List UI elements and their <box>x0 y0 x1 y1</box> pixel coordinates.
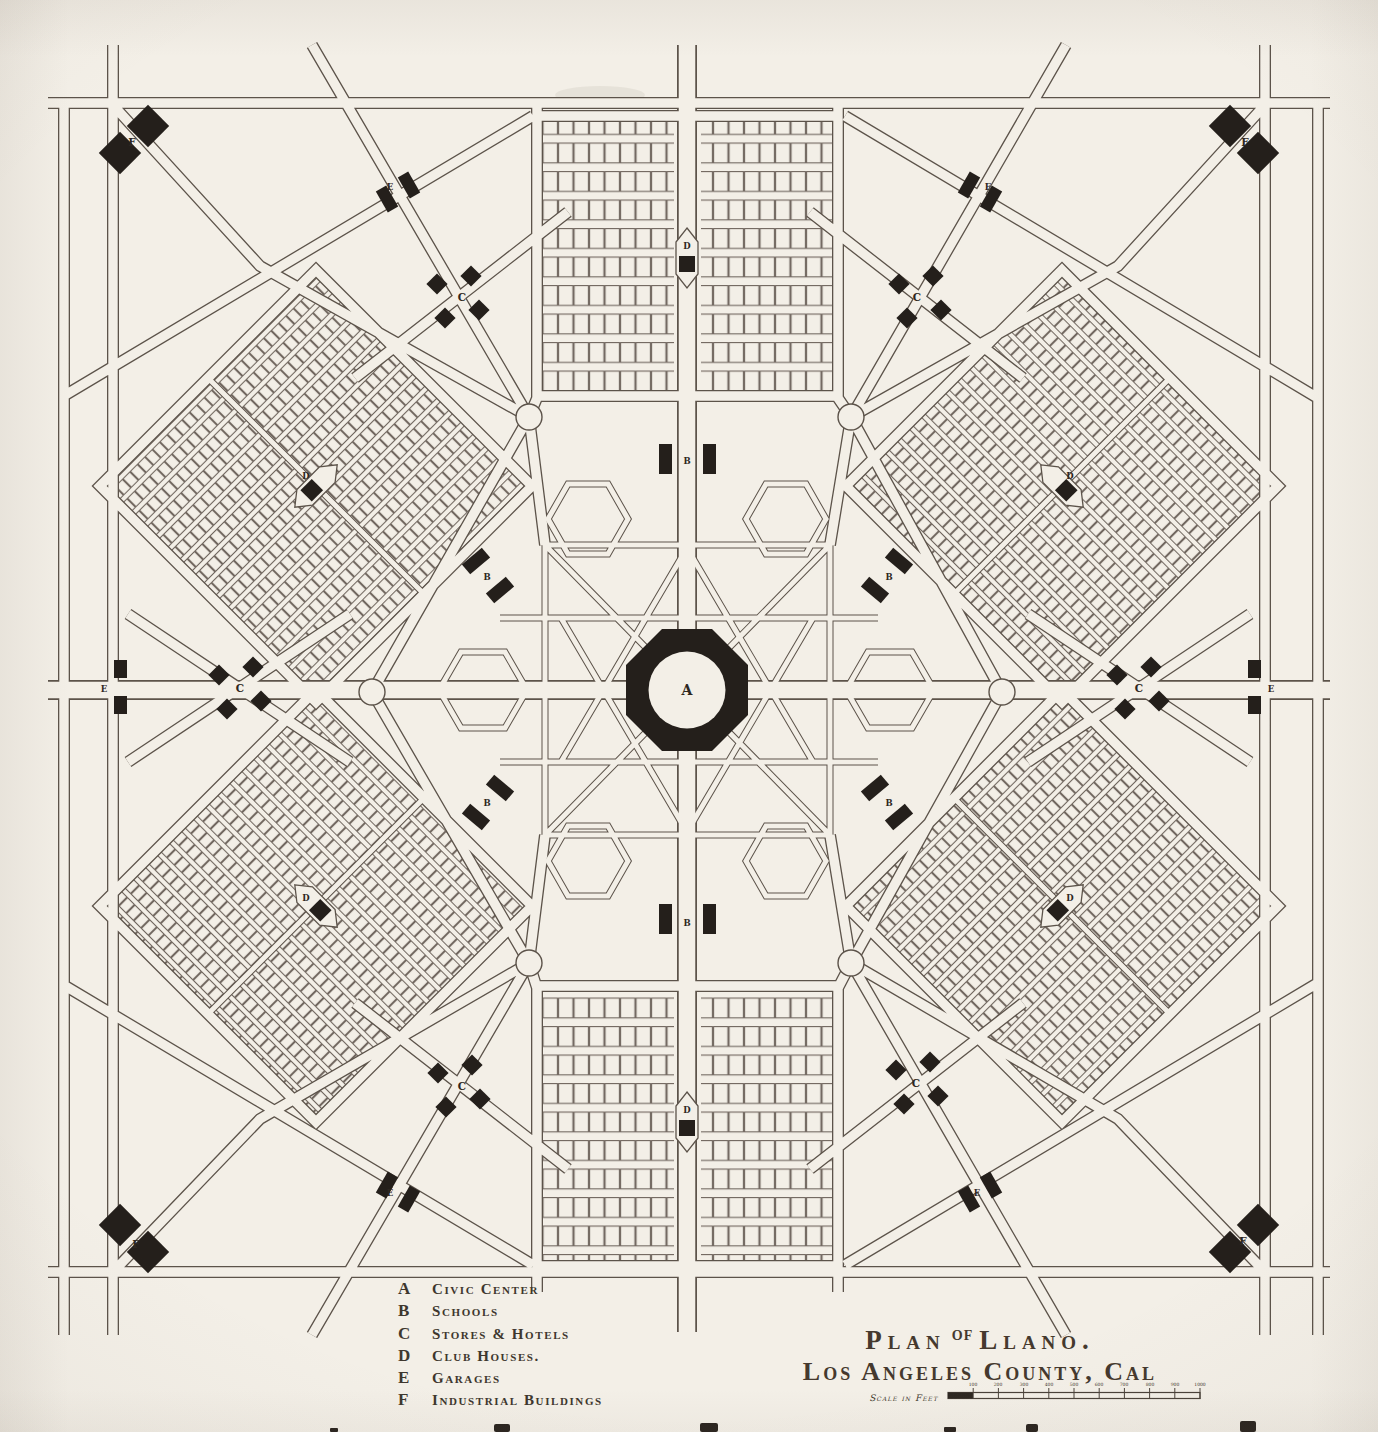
marker-industrial: F <box>132 1238 140 1250</box>
marker-club-house: D <box>302 893 310 903</box>
residential-grid-bottom-right-half <box>701 989 835 1263</box>
legend-label: Industrial Buildings <box>432 1392 603 1409</box>
residential-grid-top-right-half <box>701 119 835 393</box>
title-llano: Llano. <box>979 1325 1095 1355</box>
club-house-island <box>676 1092 698 1152</box>
legend-key: F <box>398 1390 432 1410</box>
marker-industrial: F <box>1241 136 1249 148</box>
marker-stores-hotels: C <box>1135 682 1143 694</box>
scale-bar-zero-block <box>948 1393 973 1399</box>
legend-item-schools: B Schools <box>398 1301 658 1323</box>
legend-key: A <box>398 1279 432 1299</box>
marker-stores-hotels: C <box>236 682 244 694</box>
roundabout <box>989 679 1015 705</box>
marker-school: B <box>885 572 892 582</box>
title-plan: Plan <box>865 1325 946 1355</box>
marker-stores-hotels: C <box>458 1080 466 1092</box>
city-plan-map: A B B B B B B C C C C C C D D D D D D E … <box>0 0 1378 1432</box>
legend-label: Stores & Hotels <box>432 1326 570 1343</box>
roundabout <box>516 950 542 976</box>
marker-club-house: D <box>1066 893 1074 903</box>
marker-club-house: D <box>1066 471 1074 481</box>
marker-club-house: D <box>683 241 691 251</box>
marker-garage: E <box>387 1188 394 1198</box>
llano-plan-page: A B B B B B B C C C C C C D D D D D D E … <box>0 0 1378 1432</box>
marker-garage: E <box>985 182 992 192</box>
legend-key: E <box>398 1368 432 1388</box>
marker-stores-hotels: C <box>913 291 921 303</box>
legend-key: B <box>398 1301 432 1321</box>
legend-key: C <box>398 1324 432 1344</box>
marker-school: B <box>683 918 690 928</box>
marker-garage: E <box>974 1188 981 1198</box>
map-title-block: PlanofLlano. Los Angeles County, Cal <box>755 1325 1205 1387</box>
roundabout <box>359 679 385 705</box>
map-title-line1: PlanofLlano. <box>755 1325 1205 1356</box>
map-legend: A Civic Center B Schools C Stores & Hote… <box>398 1279 658 1413</box>
marker-civic-center: A <box>681 682 694 698</box>
marker-club-house: D <box>683 1105 691 1115</box>
map-title-line2: Los Angeles County, Cal <box>755 1357 1205 1387</box>
legend-key: D <box>398 1346 432 1366</box>
marker-school: B <box>683 456 690 466</box>
marker-club-house: D <box>302 471 310 481</box>
legend-label: Schools <box>432 1303 499 1320</box>
legend-label: Garages <box>432 1370 501 1387</box>
marker-stores-hotels: C <box>912 1077 920 1089</box>
roundabout <box>838 404 864 430</box>
roundabout <box>838 950 864 976</box>
scale-label: Scale in Feet <box>869 1393 939 1403</box>
club-house-island <box>676 228 698 288</box>
marker-school: B <box>483 572 490 582</box>
legend-item-industrial-buildings: F Industrial Buildings <box>398 1390 658 1412</box>
marker-industrial: F <box>1239 1235 1247 1247</box>
residential-grid-bottom-left-half <box>540 989 674 1263</box>
legend-item-civic-center: A Civic Center <box>398 1279 658 1301</box>
legend-item-club-houses: D Club Houses. <box>398 1346 658 1368</box>
legend-label: Club Houses. <box>432 1348 540 1365</box>
legend-label: Civic Center <box>432 1281 539 1298</box>
marker-garage: E <box>1268 684 1275 694</box>
roundabout <box>516 404 542 430</box>
marker-garage: E <box>387 182 394 192</box>
marker-garage: E <box>101 684 108 694</box>
marker-school: B <box>885 798 892 808</box>
marker-stores-hotels: C <box>458 291 466 303</box>
marker-industrial: F <box>128 136 136 148</box>
residential-grid-top-left-half <box>540 119 674 393</box>
title-of: of <box>952 1328 973 1343</box>
legend-item-stores-hotels: C Stores & Hotels <box>398 1324 658 1346</box>
marker-school: B <box>483 798 490 808</box>
legend-item-garages: E Garages <box>398 1368 658 1390</box>
